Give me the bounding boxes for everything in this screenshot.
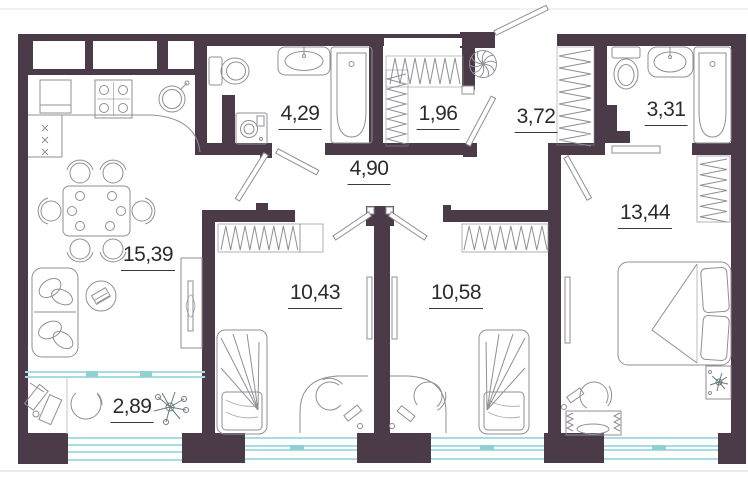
bedroom-2-door (389, 212, 427, 240)
desk-chair-1 (309, 373, 352, 416)
coffee-table (86, 281, 116, 311)
toilet-1 (209, 57, 249, 85)
dining-chair (38, 198, 61, 224)
room-label-bathroom-2: 3,31 (645, 98, 688, 126)
tv-bedroom-1 (367, 277, 372, 339)
dining-chair (132, 198, 155, 224)
hall-door (276, 149, 319, 175)
room-label-balcony: 2,89 (111, 395, 154, 423)
double-bed (618, 262, 731, 365)
fridge (40, 80, 71, 113)
dining-chair (67, 160, 93, 183)
entrance-door (494, 5, 548, 35)
kitchen-counter (28, 115, 200, 157)
desk-1 (300, 376, 368, 433)
bathtub-2 (694, 47, 731, 143)
dining-chair (100, 160, 126, 183)
floor-plan: 15,39 4,29 1,96 4,90 3,72 3,31 13,44 10,… (0, 0, 748, 480)
sink-1 (278, 47, 330, 75)
room-label-bathroom-1: 4,29 (279, 102, 322, 130)
tv-large (565, 277, 570, 343)
desk-2 (390, 376, 447, 433)
room-label-kitchen-living: 15,39 (121, 243, 175, 271)
room-label-bedroom-2: 10,58 (429, 281, 483, 309)
washing-machine (236, 113, 267, 144)
balcony-items (25, 377, 189, 434)
kitchen-sink (159, 81, 189, 112)
wardrobe-large (697, 156, 730, 222)
dining-chair (67, 239, 93, 262)
bed-2 (479, 330, 529, 434)
bedroom-large-door (564, 156, 592, 200)
sink-2 (648, 47, 693, 77)
bed-1 (217, 330, 267, 434)
dining-table (63, 186, 130, 236)
bathtub-1 (331, 47, 372, 143)
tv-bedroom-2 (392, 277, 397, 339)
storage-rails (386, 56, 463, 146)
stove (95, 80, 132, 118)
storage-door (466, 96, 496, 146)
bathroom-1-door (235, 153, 268, 201)
wardrobe-2 (462, 224, 548, 252)
room-label-corridor: 3,72 (515, 105, 558, 133)
corridor-wardrobe (557, 47, 594, 146)
room-label-hallway: 4,90 (348, 157, 391, 185)
bedside-table (706, 366, 731, 399)
room-label-bedroom-1: 10,43 (288, 281, 342, 309)
bathroom-2-door (612, 146, 660, 153)
wardrobe-1 (218, 224, 323, 252)
balcony-chair (65, 383, 107, 425)
plant (154, 392, 189, 425)
bedroom-1-door (333, 212, 371, 240)
room-label-bedroom-large: 13,44 (618, 201, 672, 229)
sofa (32, 268, 78, 357)
room-label-storage: 1,96 (417, 102, 460, 130)
tv-stand-living (181, 258, 202, 348)
toilet-2 (612, 47, 640, 89)
